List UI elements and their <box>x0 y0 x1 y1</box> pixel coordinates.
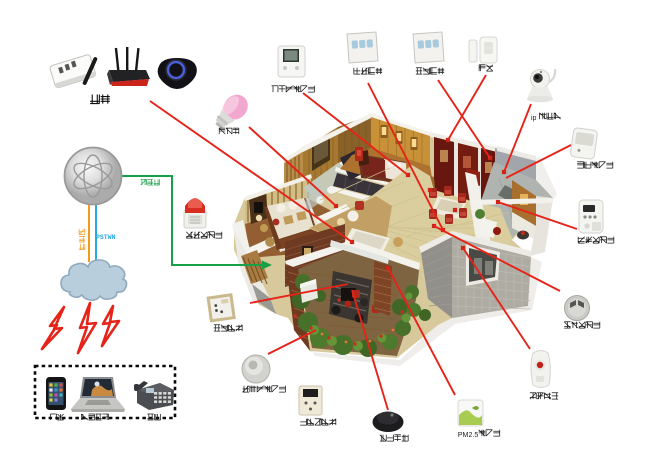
svg-text:PSTWN: PSTWN <box>96 234 116 241</box>
svg-text:PM2.5: PM2.5 <box>458 431 479 439</box>
svg-text:ip: ip <box>531 114 537 122</box>
